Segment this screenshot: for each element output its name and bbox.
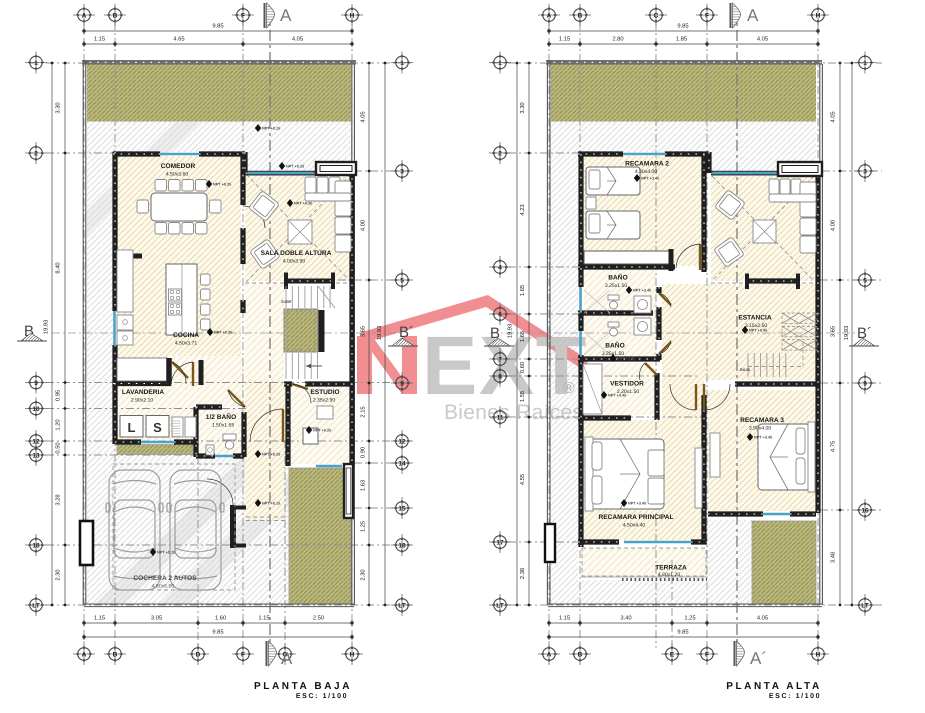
svg-text:LT: LT bbox=[398, 602, 405, 609]
svg-text:3: 3 bbox=[400, 168, 404, 175]
svg-text:1.15: 1.15 bbox=[559, 37, 570, 43]
svg-text:BAJA: BAJA bbox=[740, 368, 751, 372]
svg-text:3.28: 3.28 bbox=[55, 494, 62, 505]
svg-text:NPT +0.45: NPT +0.45 bbox=[749, 329, 767, 333]
svg-text:NPT +0.25: NPT +0.25 bbox=[262, 453, 280, 457]
svg-text:4.75: 4.75 bbox=[831, 441, 837, 452]
svg-text:1: 1 bbox=[498, 60, 502, 67]
svg-text:®: ® bbox=[563, 380, 575, 397]
svg-text:19.93: 19.93 bbox=[43, 320, 50, 335]
svg-text:1.63: 1.63 bbox=[360, 480, 367, 491]
svg-text:1.65: 1.65 bbox=[519, 331, 526, 342]
svg-text:NPT +3.45: NPT +3.45 bbox=[628, 502, 646, 506]
svg-text:4.50x5.50: 4.50x5.50 bbox=[152, 584, 175, 590]
svg-text:4.05: 4.05 bbox=[830, 111, 837, 122]
svg-text:4.55: 4.55 bbox=[520, 474, 526, 485]
svg-text:1.25: 1.25 bbox=[360, 521, 367, 532]
svg-text:NPT +3.45: NPT +3.45 bbox=[641, 177, 659, 181]
svg-text:NPT +3.45: NPT +3.45 bbox=[754, 436, 772, 440]
svg-text:ESC: 1/100: ESC: 1/100 bbox=[769, 692, 821, 700]
svg-text:2.30: 2.30 bbox=[360, 569, 367, 580]
svg-text:2.35x2.90: 2.35x2.90 bbox=[313, 398, 336, 404]
svg-text:ESTANCIA: ESTANCIA bbox=[738, 315, 771, 322]
svg-text:4.50x3.71: 4.50x3.71 bbox=[175, 341, 198, 347]
svg-text:8: 8 bbox=[498, 373, 502, 380]
svg-text:3.90x4.00: 3.90x4.00 bbox=[749, 426, 772, 432]
svg-text:18: 18 bbox=[398, 542, 406, 549]
svg-text:F: F bbox=[705, 12, 709, 19]
svg-text:A: A bbox=[747, 6, 759, 25]
svg-text:LT: LT bbox=[496, 602, 503, 609]
svg-text:B: B bbox=[578, 651, 583, 658]
svg-text:PLANTA BAJA: PLANTA BAJA bbox=[254, 681, 352, 692]
svg-text:Bienes Raíces: Bienes Raíces bbox=[444, 401, 583, 424]
svg-text:1: 1 bbox=[400, 60, 404, 67]
svg-text:1.15: 1.15 bbox=[94, 616, 105, 622]
svg-text:2.30: 2.30 bbox=[55, 569, 62, 580]
svg-text:3.25x1.50: 3.25x1.50 bbox=[605, 283, 628, 289]
svg-text:NPT +3.45: NPT +3.45 bbox=[617, 357, 635, 361]
svg-text:C: C bbox=[654, 12, 659, 19]
svg-text:10: 10 bbox=[32, 406, 40, 413]
svg-text:1.50x1.65: 1.50x1.65 bbox=[212, 423, 235, 429]
svg-text:11: 11 bbox=[497, 414, 504, 421]
svg-text:H: H bbox=[816, 651, 821, 658]
svg-text:A´: A´ bbox=[750, 649, 767, 668]
svg-text:3.30: 3.30 bbox=[55, 102, 62, 113]
svg-text:L: L bbox=[128, 420, 136, 435]
svg-text:TERRAZA: TERRAZA bbox=[655, 565, 687, 572]
svg-text:19.93: 19.93 bbox=[507, 324, 514, 339]
svg-text:2: 2 bbox=[34, 150, 38, 157]
svg-text:1.15: 1.15 bbox=[258, 616, 269, 622]
svg-text:4.05: 4.05 bbox=[757, 36, 768, 43]
svg-text:18: 18 bbox=[32, 542, 40, 549]
svg-text:9: 9 bbox=[863, 380, 867, 387]
svg-text:4.50x3.60: 4.50x3.60 bbox=[166, 172, 189, 178]
svg-text:F: F bbox=[241, 12, 245, 19]
svg-text:S: S bbox=[153, 420, 162, 435]
svg-text:3.65: 3.65 bbox=[360, 326, 367, 337]
svg-text:NPT +0.35: NPT +0.35 bbox=[294, 202, 312, 206]
svg-text:4.05: 4.05 bbox=[757, 615, 768, 622]
svg-text:NPT +3.45: NPT +3.45 bbox=[633, 289, 651, 293]
svg-text:1.20: 1.20 bbox=[55, 419, 62, 430]
svg-text:LT: LT bbox=[861, 602, 868, 609]
svg-text:LT: LT bbox=[32, 602, 39, 609]
svg-text:3.40: 3.40 bbox=[620, 615, 631, 622]
svg-text:B: B bbox=[578, 12, 583, 19]
svg-text:NPT +0.25: NPT +0.25 bbox=[213, 183, 231, 187]
svg-text:9.85: 9.85 bbox=[212, 23, 223, 30]
svg-text:RECAMARA 3: RECAMARA 3 bbox=[740, 417, 784, 424]
svg-text:SALA DOBLE ALTURA: SALA DOBLE ALTURA bbox=[261, 250, 332, 257]
svg-text:4.00x3.90: 4.00x3.90 bbox=[283, 259, 306, 265]
svg-text:E: E bbox=[670, 651, 675, 658]
svg-text:1/2 BAÑO: 1/2 BAÑO bbox=[206, 413, 236, 421]
svg-text:NPT +3.45: NPT +3.45 bbox=[608, 394, 626, 398]
svg-text:3: 3 bbox=[863, 168, 867, 175]
svg-text:16: 16 bbox=[861, 507, 869, 514]
svg-text:3.05: 3.05 bbox=[151, 615, 162, 622]
svg-text:ESTUDIO: ESTUDIO bbox=[310, 389, 339, 396]
svg-text:1.15: 1.15 bbox=[559, 616, 570, 622]
svg-text:2.50: 2.50 bbox=[313, 615, 324, 622]
svg-text:1.60: 1.60 bbox=[215, 615, 226, 622]
svg-text:BAÑO: BAÑO bbox=[605, 342, 624, 350]
svg-text:NPT +0.15: NPT +0.15 bbox=[157, 551, 175, 555]
svg-text:H: H bbox=[350, 12, 355, 19]
svg-text:2: 2 bbox=[498, 150, 502, 157]
svg-text:9.85: 9.85 bbox=[677, 23, 688, 30]
svg-text:4.80x1.20: 4.80x1.20 bbox=[658, 572, 681, 578]
svg-text:1.55: 1.55 bbox=[520, 391, 526, 402]
svg-text:2.90x2.10: 2.90x2.10 bbox=[131, 398, 154, 404]
svg-text:4.05: 4.05 bbox=[292, 36, 303, 43]
svg-text:15: 15 bbox=[398, 505, 406, 512]
svg-text:B: B bbox=[113, 651, 118, 658]
svg-text:COCHERA 2 AUTOS: COCHERA 2 AUTOS bbox=[133, 575, 197, 582]
svg-text:F: F bbox=[705, 651, 709, 658]
svg-text:2.80: 2.80 bbox=[612, 36, 623, 43]
svg-text:NPT +0.25: NPT +0.25 bbox=[286, 165, 304, 169]
svg-text:14: 14 bbox=[398, 460, 406, 467]
svg-text:6: 6 bbox=[498, 311, 502, 318]
svg-text:RECAMARA 2: RECAMARA 2 bbox=[625, 161, 669, 168]
svg-text:BAÑO: BAÑO bbox=[608, 274, 627, 282]
svg-text:F: F bbox=[241, 651, 245, 658]
svg-text:VESTIDOR: VESTIDOR bbox=[610, 381, 644, 388]
svg-text:5: 5 bbox=[400, 277, 404, 284]
svg-text:12: 12 bbox=[398, 438, 406, 445]
svg-text:13: 13 bbox=[32, 452, 40, 459]
svg-text:4.23: 4.23 bbox=[519, 204, 526, 215]
svg-text:4.00: 4.00 bbox=[360, 220, 367, 231]
svg-text:3.65: 3.65 bbox=[830, 326, 837, 337]
svg-text:ESC: 1/100: ESC: 1/100 bbox=[296, 692, 348, 700]
svg-text:A: A bbox=[82, 651, 87, 658]
svg-text:D: D bbox=[196, 651, 201, 658]
svg-text:PLANTA ALTA: PLANTA ALTA bbox=[726, 681, 822, 692]
svg-text:4: 4 bbox=[498, 264, 502, 271]
svg-text:NPT +0.15: NPT +0.15 bbox=[262, 502, 280, 506]
svg-text:COCINA: COCINA bbox=[173, 332, 199, 339]
svg-text:0.60: 0.60 bbox=[519, 362, 526, 373]
svg-text:1.85: 1.85 bbox=[676, 36, 687, 43]
svg-text:8.40: 8.40 bbox=[55, 262, 62, 273]
svg-text:1: 1 bbox=[863, 60, 867, 67]
svg-text:EXT: EXT bbox=[422, 319, 588, 412]
svg-text:NPT +0.15: NPT +0.15 bbox=[262, 127, 280, 131]
svg-text:SUBE: SUBE bbox=[281, 300, 292, 304]
svg-text:B: B bbox=[113, 12, 118, 19]
svg-text:9.85: 9.85 bbox=[212, 629, 223, 636]
svg-text:RECAMARA PRINCIPAL: RECAMARA PRINCIPAL bbox=[598, 514, 673, 521]
svg-text:4.05: 4.05 bbox=[360, 111, 367, 122]
svg-text:A: A bbox=[547, 12, 552, 19]
svg-text:3.48: 3.48 bbox=[830, 552, 837, 563]
svg-text:H: H bbox=[816, 12, 821, 19]
svg-text:COMEDOR: COMEDOR bbox=[161, 163, 196, 170]
svg-text:2.15: 2.15 bbox=[360, 406, 367, 417]
svg-text:9: 9 bbox=[400, 380, 404, 387]
svg-text:19.93: 19.93 bbox=[843, 326, 850, 341]
svg-text:A: A bbox=[547, 651, 552, 658]
svg-text:0.95: 0.95 bbox=[55, 390, 62, 401]
svg-text:A: A bbox=[82, 12, 87, 19]
svg-text:A: A bbox=[280, 6, 292, 25]
svg-text:9: 9 bbox=[34, 380, 38, 387]
svg-text:4.30x4.00: 4.30x4.00 bbox=[635, 169, 658, 175]
svg-text:1: 1 bbox=[34, 60, 38, 67]
svg-text:1.15: 1.15 bbox=[94, 37, 105, 43]
svg-text:4.00: 4.00 bbox=[830, 220, 837, 231]
svg-text:4.65: 4.65 bbox=[173, 36, 184, 43]
svg-text:LAVANDERIA: LAVANDERIA bbox=[122, 389, 164, 396]
svg-text:H: H bbox=[350, 651, 355, 658]
svg-text:1.25: 1.25 bbox=[684, 615, 695, 622]
svg-text:19.93: 19.93 bbox=[376, 326, 383, 341]
svg-text:A: A bbox=[281, 649, 293, 668]
svg-text:NPT +0.25: NPT +0.25 bbox=[214, 331, 232, 335]
svg-text:1.65: 1.65 bbox=[519, 285, 526, 296]
svg-text:9.85: 9.85 bbox=[677, 629, 688, 636]
svg-text:5: 5 bbox=[863, 277, 867, 284]
svg-text:2.38: 2.38 bbox=[519, 568, 526, 579]
svg-text:0.90: 0.90 bbox=[360, 447, 367, 458]
svg-text:0.50: 0.50 bbox=[55, 442, 62, 453]
svg-text:7: 7 bbox=[498, 356, 502, 363]
svg-text:NPT +0.25: NPT +0.25 bbox=[313, 429, 331, 433]
svg-text:17: 17 bbox=[496, 539, 504, 546]
svg-text:4.50x4.40: 4.50x4.40 bbox=[623, 523, 646, 529]
svg-text:3.30: 3.30 bbox=[519, 102, 526, 113]
